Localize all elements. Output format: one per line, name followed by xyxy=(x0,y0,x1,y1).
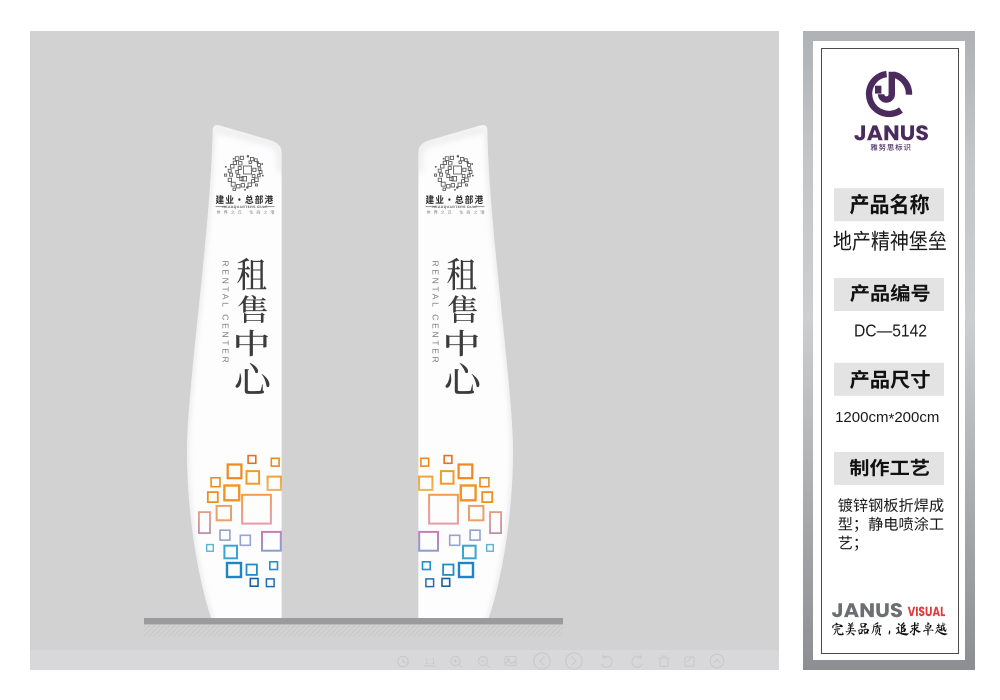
svg-text:RENTAL CENTER: RENTAL CENTER xyxy=(430,260,440,365)
svg-text:1:1: 1:1 xyxy=(424,657,436,666)
svg-text:1200cm*200cm: 1200cm*200cm xyxy=(835,409,939,428)
svg-text:DC—5142: DC—5142 xyxy=(854,321,927,341)
svg-text:RENTAL CENTER: RENTAL CENTER xyxy=(220,260,230,365)
